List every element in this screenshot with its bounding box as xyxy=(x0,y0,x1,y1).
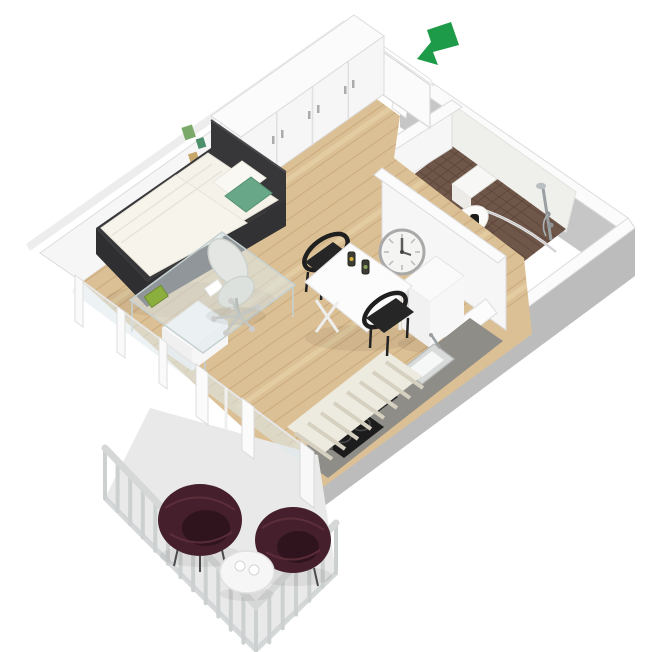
shower-head xyxy=(536,183,546,189)
balcony-table xyxy=(220,551,274,601)
corner-post xyxy=(300,441,314,508)
entrance-arrow-icon xyxy=(417,22,459,65)
cup-1 xyxy=(235,561,245,571)
wall-clock xyxy=(380,230,424,274)
floor-plan-render xyxy=(0,0,652,652)
cup-2 xyxy=(249,565,259,575)
